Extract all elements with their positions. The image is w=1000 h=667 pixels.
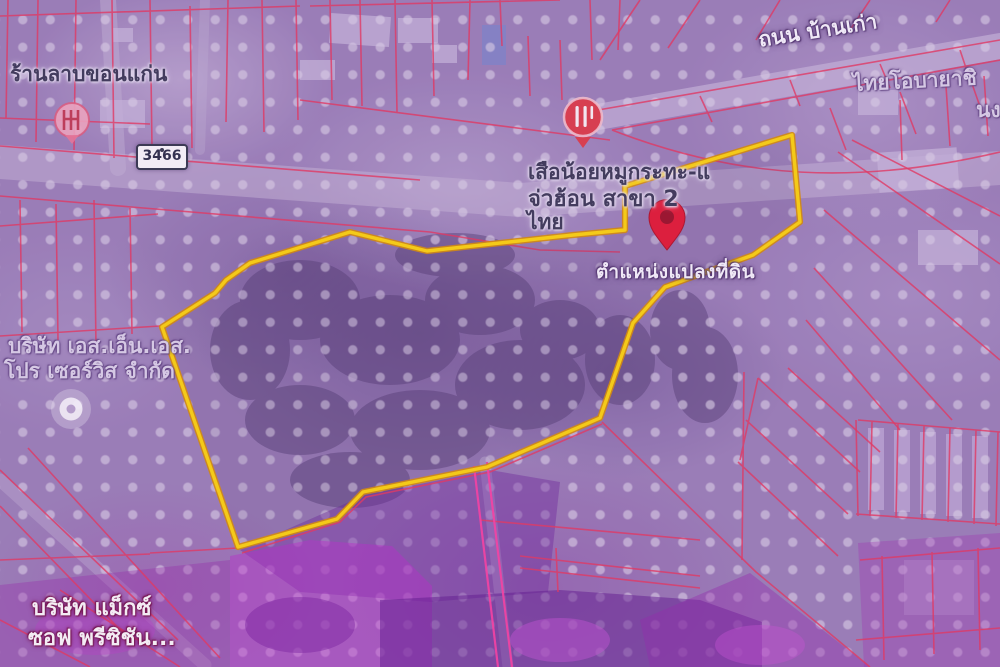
company-label-left-line2: โปร เซอร์วิส จำกัด [4, 355, 175, 388]
restaurant-pin-icon[interactable] [564, 98, 602, 148]
company-place-pin-icon[interactable] [51, 389, 91, 429]
company-label-bottom-left-line2: ซอฟ พรีซิชัน... [28, 620, 176, 655]
shop-label-top-left: ร้านลาบขอนแก่น [10, 58, 167, 91]
food-shop-pin-icon[interactable] [55, 103, 89, 144]
restaurant-label-line3: ไทย [527, 206, 564, 239]
map-canvas[interactable]: ร้านลาบขอนแก่น 3466 ถนน บ้านเก่า ไทยโอบา… [0, 0, 1000, 667]
company-label-top-right-line2: นงเชื [976, 94, 1000, 127]
route-number-badge: 3466 [136, 144, 188, 170]
company-label-top-right-line1: ไทยโอบายาชิ [852, 62, 978, 101]
parcel-marker-caption: ตำแหน่งแปลงที่ดิน [596, 257, 755, 287]
